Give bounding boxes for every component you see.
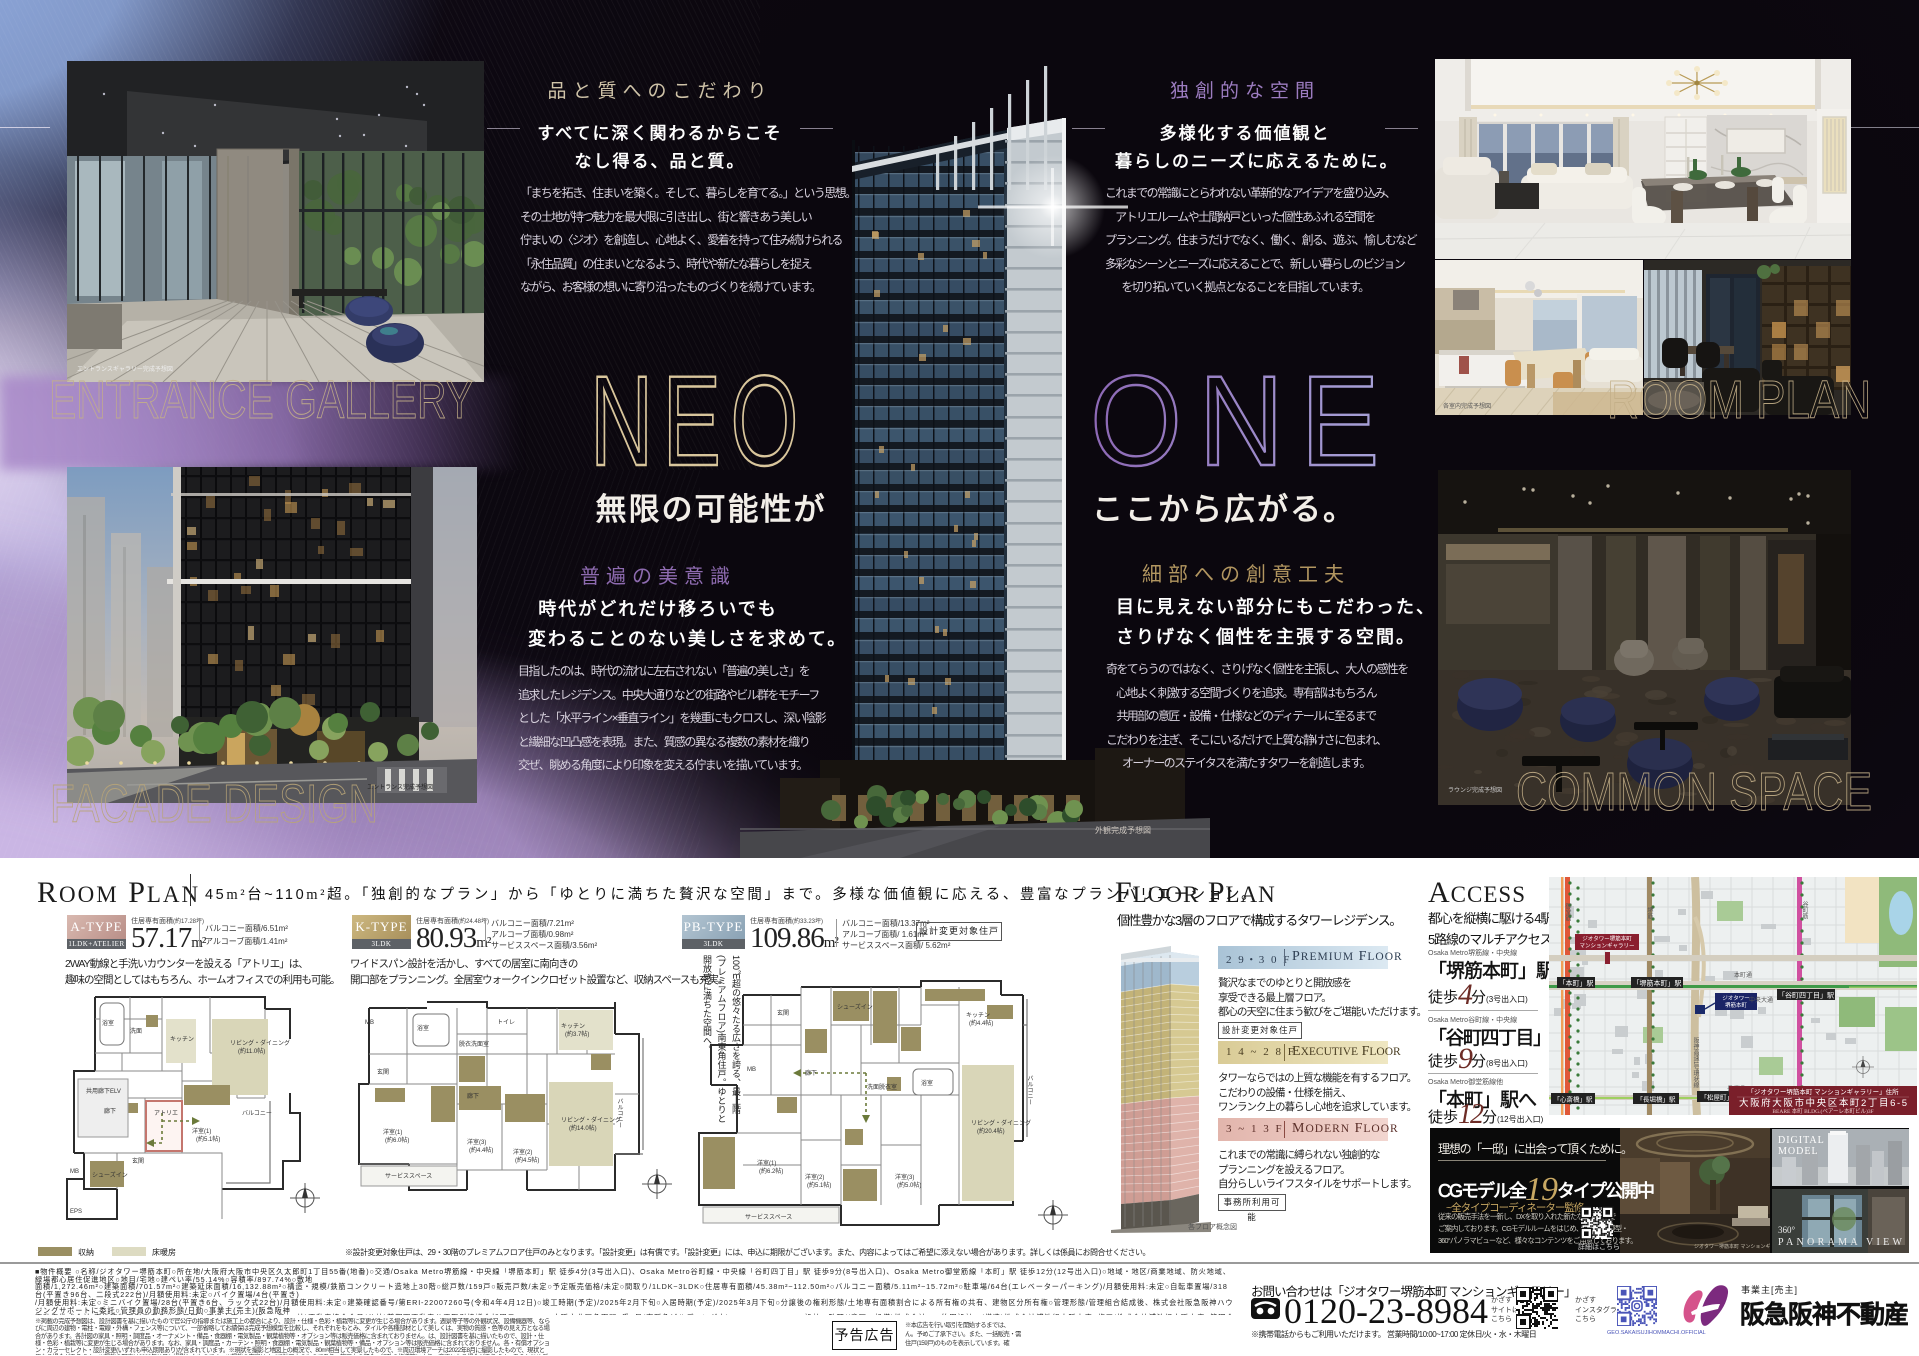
svg-text:バルコニー: バルコニー: [1026, 1075, 1033, 1105]
svg-text:アトリエ: アトリエ: [154, 1110, 178, 1117]
svg-text:(約3.7帖): (約3.7帖): [565, 1030, 589, 1038]
svg-text:廊下: 廊下: [104, 1107, 116, 1115]
svg-text:(約5.1帖): (約5.1帖): [196, 1135, 220, 1143]
svg-text:洋室(1): 洋室(1): [757, 1159, 776, 1167]
svg-text:玄関: 玄関: [132, 1157, 144, 1165]
svg-text:阪神高速1号環状線: 阪神高速1号環状線: [1692, 1036, 1699, 1088]
svg-text:中央大通: 中央大通: [1749, 996, 1773, 1004]
svg-text:リビング・ダイニング: リビング・ダイニング: [971, 1119, 1031, 1127]
svg-text:ジオタワー堺筋本町: ジオタワー堺筋本町: [1582, 935, 1632, 943]
svg-text:(約6.2帖): (約6.2帖): [759, 1167, 783, 1175]
svg-text:ジオタワー: ジオタワー: [1722, 994, 1750, 1002]
svg-text:本町通: 本町通: [1734, 971, 1752, 979]
svg-text:浴室: 浴室: [417, 1024, 429, 1032]
svg-text:COMMON SPACE: COMMON SPACE: [1516, 764, 1872, 820]
svg-text:「本町」駅: 「本町」駅: [1559, 979, 1594, 988]
svg-text:堺筋: 堺筋: [1646, 906, 1653, 920]
svg-text:BEARE 本町 BLDG.(ベアーレ本町ビル)3F: BEARE 本町 BLDG.(ベアーレ本町ビル)3F: [1772, 1107, 1873, 1115]
svg-text:浴室: 浴室: [102, 1019, 114, 1027]
svg-text:洋室(3): 洋室(3): [895, 1173, 914, 1181]
svg-text:キッチン: キッチン: [561, 1023, 585, 1030]
svg-text:シューズイン: シューズイン: [92, 1171, 128, 1179]
svg-text:「心斎橋」駅: 「心斎橋」駅: [1554, 1095, 1594, 1104]
svg-text:廊下: 廊下: [805, 1069, 817, 1077]
svg-text:「谷町四丁目」駅: 「谷町四丁目」駅: [1778, 991, 1834, 1000]
svg-text:(約5.0帖): (約5.0帖): [897, 1181, 921, 1189]
svg-text:バルコニー: バルコニー: [242, 1110, 272, 1117]
svg-text:シューズイン: シューズイン: [837, 1003, 873, 1011]
svg-text:(約14.0帖): (約14.0帖): [569, 1124, 597, 1132]
svg-text:ONE: ONE: [1090, 350, 1396, 490]
svg-text:FACADE DESIGN: FACADE DESIGN: [50, 776, 378, 832]
svg-text:MB: MB: [747, 1067, 756, 1073]
svg-text:(約6.0帖): (約6.0帖): [385, 1136, 409, 1144]
svg-text:脱衣洗面室: 脱衣洗面室: [459, 1040, 489, 1048]
svg-text:(約4.5帖): (約4.5帖): [515, 1156, 539, 1164]
svg-text:リビング・ダイニング: リビング・ダイニング: [230, 1039, 290, 1047]
svg-text:MB: MB: [70, 1169, 79, 1175]
svg-text:ラウンジ完成予想図: ラウンジ完成予想図: [1448, 786, 1502, 794]
svg-text:キッチン: キッチン: [966, 1012, 990, 1019]
svg-text:360°: 360°: [1778, 1225, 1796, 1235]
svg-text:リビング・ダイニング: リビング・ダイニング: [561, 1116, 621, 1124]
svg-text:「長堀橋」駅: 「長堀橋」駅: [1637, 1095, 1677, 1104]
svg-text:(約4.4帖): (約4.4帖): [969, 1019, 993, 1027]
svg-text:洋室(3): 洋室(3): [467, 1138, 486, 1146]
svg-text:御堂筋: 御堂筋: [1564, 902, 1571, 922]
svg-text:EPS: EPS: [70, 1209, 82, 1215]
svg-text:洋室(2): 洋室(2): [513, 1148, 532, 1156]
svg-text:「堺筋本町」駅: 「堺筋本町」駅: [1633, 979, 1682, 988]
svg-text:洋室(1): 洋室(1): [192, 1127, 211, 1135]
svg-text:(約4.4帖): (約4.4帖): [469, 1146, 493, 1154]
svg-text:(約20.4帖): (約20.4帖): [977, 1127, 1005, 1135]
svg-text:共用廊下ELV: 共用廊下ELV: [86, 1087, 121, 1095]
svg-text:玄関: 玄関: [377, 1068, 389, 1076]
svg-text:谷町筋: 谷町筋: [1801, 900, 1808, 920]
svg-text:MB: MB: [365, 1020, 374, 1026]
svg-text:堺筋本町: 堺筋本町: [1725, 1001, 1748, 1009]
svg-text:キッチン: キッチン: [170, 1036, 194, 1043]
svg-text:廊下: 廊下: [467, 1092, 479, 1100]
svg-text:DIGITAL: DIGITAL: [1778, 1135, 1825, 1146]
svg-text:洗面脱衣室: 洗面脱衣室: [867, 1083, 897, 1091]
svg-text:各室内完成予想図: 各室内完成予想図: [1443, 402, 1491, 410]
svg-text:PANORAMA VIEW: PANORAMA VIEW: [1778, 1237, 1903, 1248]
svg-text:「ジオタワー堺筋本町 マンションギャラリー」住所: 「ジオタワー堺筋本町 マンションギャラリー」住所: [1747, 1087, 1899, 1096]
svg-text:サービススペース: サービススペース: [745, 1213, 792, 1221]
svg-text:(約11.0帖): (約11.0帖): [238, 1047, 265, 1055]
svg-text:サービススペース: サービススペース: [385, 1172, 432, 1180]
svg-text:ENTRANCE GALLERY: ENTRANCE GALLERY: [49, 372, 473, 428]
svg-text:玄関: 玄関: [777, 1009, 789, 1017]
svg-text:トイレ: トイレ: [497, 1020, 515, 1026]
svg-text:洗面: 洗面: [130, 1027, 142, 1035]
svg-text:ジオタワー堺筋本町 マンションギャラリーエントランス: ジオタワー堺筋本町 マンションギャラリーエントランス: [1694, 1243, 1770, 1250]
svg-text:バルコニー: バルコニー: [616, 1098, 623, 1128]
svg-text:(約5.1帖): (約5.1帖): [807, 1181, 831, 1189]
svg-text:浴室: 浴室: [921, 1079, 933, 1087]
svg-text:洋室(2): 洋室(2): [805, 1173, 824, 1181]
svg-text:大阪府大阪市中央区本町2丁目6-5: 大阪府大阪市中央区本町2丁目6-5: [1739, 1097, 1907, 1109]
svg-text:MODEL: MODEL: [1778, 1146, 1819, 1157]
svg-text:ROOM PLAN: ROOM PLAN: [1607, 372, 1871, 428]
svg-text:洋室(1): 洋室(1): [383, 1128, 402, 1136]
svg-text:マンションギャラリー: マンションギャラリー: [1579, 943, 1634, 950]
svg-text:NEO: NEO: [590, 350, 808, 490]
